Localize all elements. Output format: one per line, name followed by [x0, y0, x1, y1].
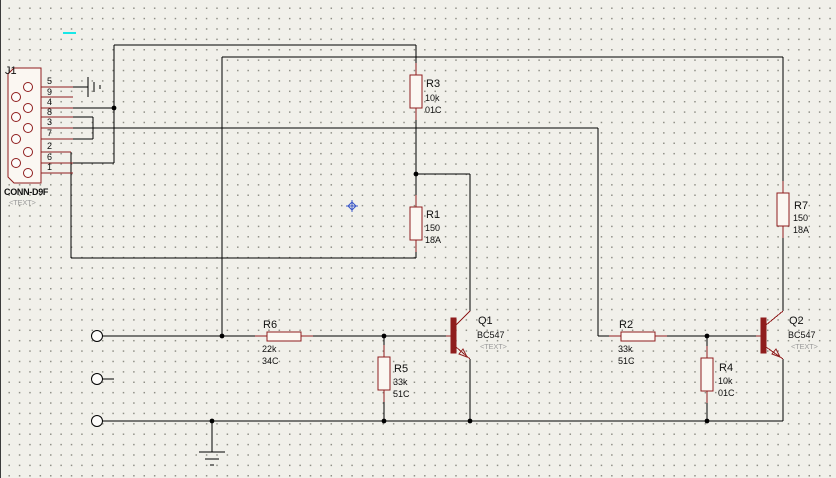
label-r2-ref: R2: [619, 319, 633, 331]
label-r4-code: 01C: [718, 388, 735, 398]
connector-pin-hole-9[interactable]: [12, 93, 21, 102]
selection-artifact: [63, 32, 76, 34]
label-q2-placeholder: <TEXT>: [791, 342, 819, 351]
label-r5-value: 33k: [393, 377, 408, 387]
label-r2-value: 33k: [618, 344, 633, 354]
junction-dot: [705, 419, 710, 424]
connector-pin-hole-8[interactable]: [12, 113, 21, 122]
label-j1-ref: J1: [5, 65, 17, 77]
pin-label-9: 9: [47, 87, 52, 97]
junction-dot: [705, 334, 710, 339]
resistor-R6[interactable]: [267, 332, 301, 341]
resistor-R4[interactable]: [701, 358, 713, 391]
pin-label-7: 7: [47, 128, 52, 138]
pin-label-6: 6: [47, 152, 52, 162]
label-r4-value: 10k: [718, 376, 733, 386]
label-r7-value: 150: [793, 213, 808, 223]
label-r7-code: 18A: [793, 225, 809, 235]
pin-label-3: 3: [47, 117, 52, 127]
label-r7-ref: R7: [794, 200, 808, 212]
label-q1-ref: Q1: [478, 315, 493, 327]
resistor-R1[interactable]: [410, 207, 422, 240]
resistor-R3[interactable]: [410, 75, 422, 108]
label-r6-ref: R6: [263, 319, 277, 331]
label-r1-ref: R1: [426, 209, 440, 221]
schematic-canvas[interactable]: J1CONN-D9F<TEXT>594837261R310k01CR115018…: [0, 0, 836, 478]
junction-dot: [382, 419, 387, 424]
terminal[interactable]: [92, 416, 103, 427]
junction-dot: [468, 419, 473, 424]
pin-label-2: 2: [47, 141, 52, 151]
terminal[interactable]: [92, 331, 103, 342]
label-q1-placeholder: <TEXT>: [480, 342, 508, 351]
schematic-drawing: J1CONN-D9F<TEXT>594837261R310k01CR115018…: [1, 0, 836, 478]
junction-dot: [220, 334, 225, 339]
pin-label-5: 5: [47, 76, 52, 86]
label-r3-value: 10k: [425, 93, 440, 103]
label-r5-ref: R5: [394, 363, 408, 375]
label-r3-ref: R3: [426, 78, 440, 90]
resistor-R5[interactable]: [378, 357, 390, 390]
connector-pin-hole-7[interactable]: [12, 135, 21, 144]
label-r3-code: 01C: [425, 105, 442, 115]
connector-pin-hole-4[interactable]: [24, 104, 33, 113]
junction-dot: [112, 106, 117, 111]
transistor-Q1-base-bar[interactable]: [451, 318, 456, 353]
pin-label-8: 8: [47, 107, 52, 117]
connector-pin-hole-6[interactable]: [12, 159, 21, 168]
label-j1-placeholder: <TEXT>: [9, 198, 37, 207]
connector-pin-hole-2[interactable]: [24, 148, 33, 157]
label-q2-ref: Q2: [789, 315, 804, 327]
junction-dot: [210, 419, 215, 424]
label-r1-value: 150: [425, 223, 440, 233]
label-q2-part: BC547: [788, 330, 816, 340]
component-pin[interactable]: [766, 311, 783, 325]
label-r6-code: 34C: [262, 356, 279, 366]
origin-cursor-icon: [346, 200, 358, 212]
label-r5-code: 51C: [393, 389, 410, 399]
junction-dot: [414, 172, 419, 177]
junction-dot: [382, 334, 387, 339]
label-r2-code: 51C: [618, 356, 635, 366]
connector-pin-hole-3[interactable]: [24, 124, 33, 133]
resistor-R2[interactable]: [621, 332, 655, 341]
connector-pin-hole-5[interactable]: [24, 83, 33, 92]
component-pin[interactable]: [456, 311, 470, 325]
label-j1-part: CONN-D9F: [4, 187, 49, 197]
label-r6-value: 22k: [262, 344, 277, 354]
pin-label-4: 4: [47, 97, 52, 107]
transistor-Q2-base-bar[interactable]: [761, 318, 766, 353]
connector-pin-hole-1[interactable]: [24, 169, 33, 178]
resistor-R7[interactable]: [777, 193, 789, 226]
pin-label-1: 1: [47, 162, 52, 172]
terminal[interactable]: [92, 374, 103, 385]
label-r4-ref: R4: [719, 362, 733, 374]
label-q1-part: BC547: [477, 330, 505, 340]
label-r1-code: 18A: [425, 235, 441, 245]
